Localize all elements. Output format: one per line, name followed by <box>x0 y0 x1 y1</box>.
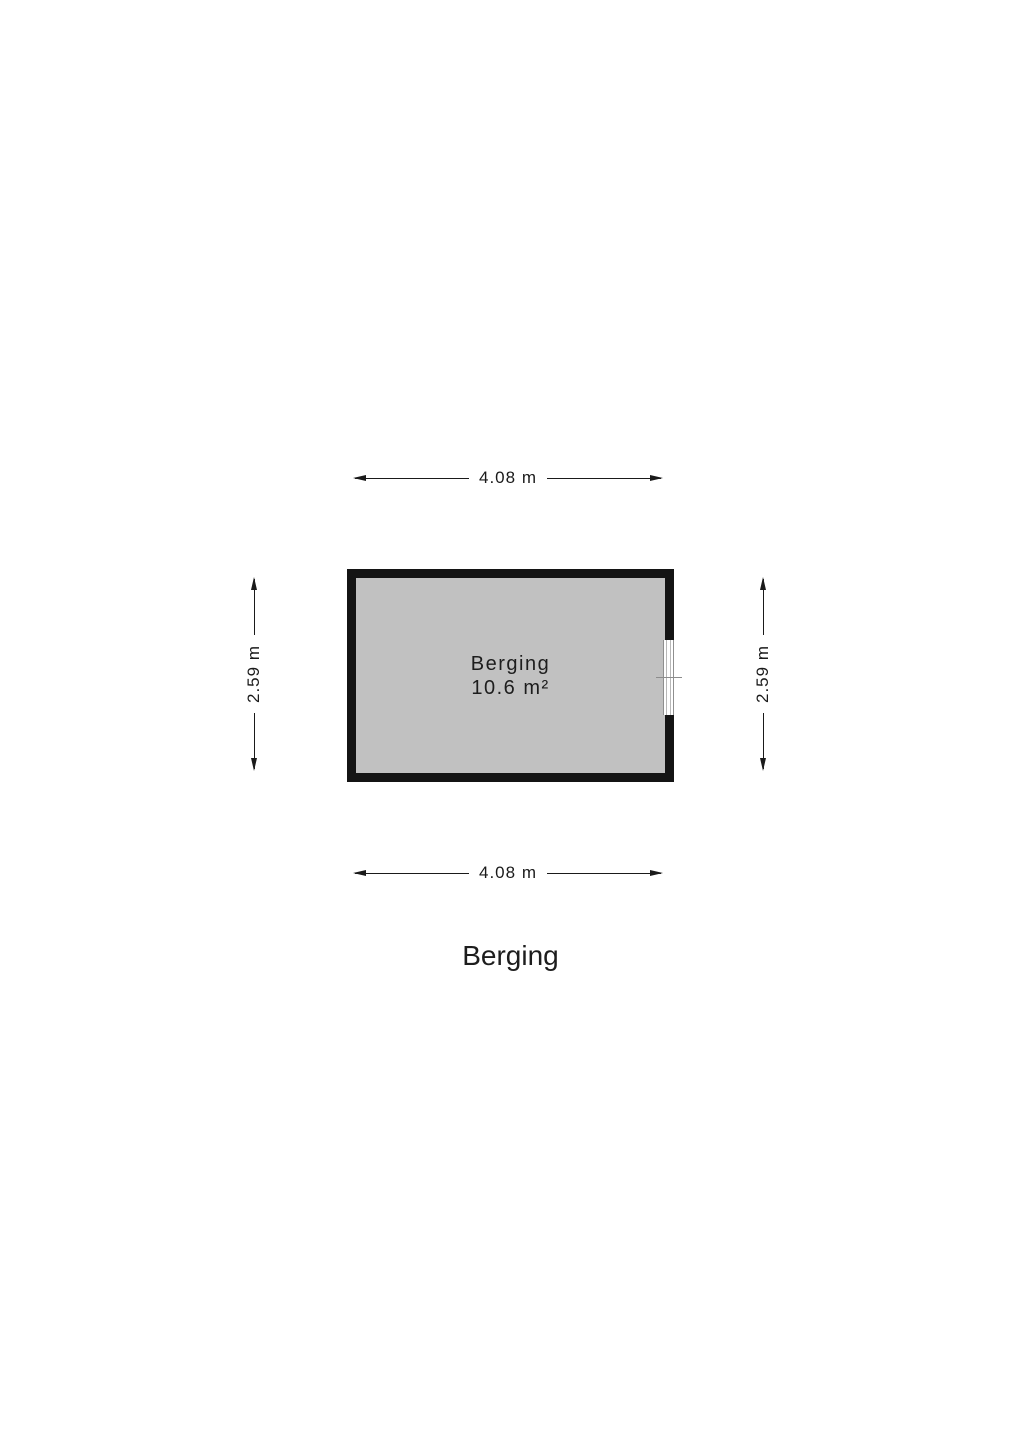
dimension-right-label: 2.59 m <box>753 635 773 713</box>
room-outline: Berging 10.6 m² <box>347 569 674 782</box>
arrow-down-icon <box>251 758 257 771</box>
arrow-down-icon <box>760 758 766 771</box>
room-area-label: 10.6 m² <box>471 676 550 700</box>
arrow-up-icon <box>760 577 766 590</box>
dimension-bottom-label: 4.08 m <box>469 863 547 883</box>
dimension-top-label: 4.08 m <box>469 468 547 488</box>
room-label: Berging 10.6 m² <box>471 652 550 700</box>
window-center-tick <box>656 677 682 678</box>
room-name-label: Berging <box>471 652 550 676</box>
arrow-right-icon <box>650 475 663 481</box>
floorplan-title: Berging <box>347 941 674 971</box>
floorplan-page: 4.08 m 2.59 m 2.59 m Berging 10.6 m² 4.0… <box>0 0 1018 1440</box>
dimension-left: 2.59 m <box>246 577 262 771</box>
dimension-bottom: 4.08 m <box>353 865 663 881</box>
dimension-right: 2.59 m <box>755 577 771 771</box>
dimension-top: 4.08 m <box>353 470 663 486</box>
arrow-up-icon <box>251 577 257 590</box>
dimension-left-label: 2.59 m <box>244 635 264 713</box>
arrow-right-icon <box>650 870 663 876</box>
arrow-left-icon <box>353 870 366 876</box>
arrow-left-icon <box>353 475 366 481</box>
